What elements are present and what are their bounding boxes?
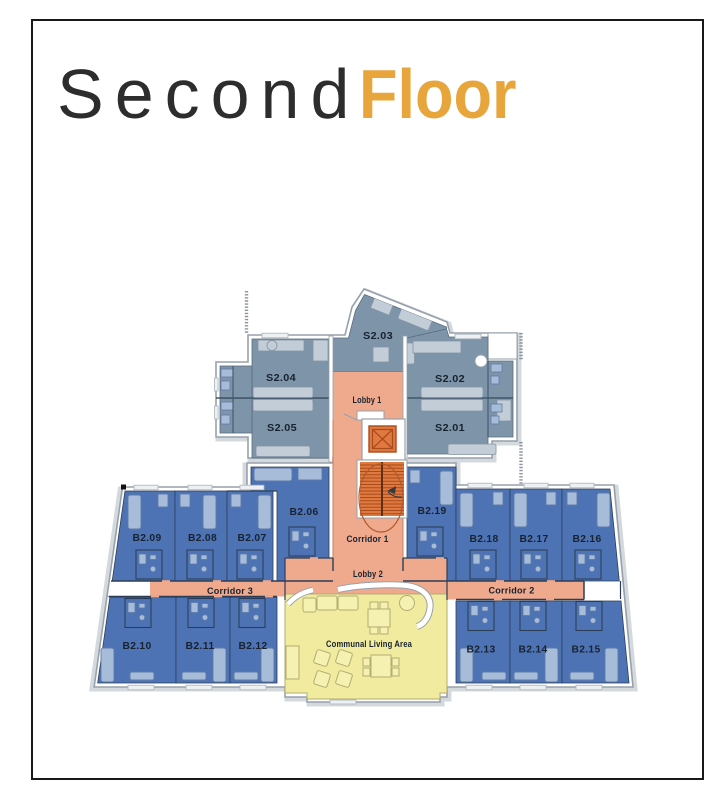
svg-text:B2.06: B2.06 xyxy=(290,507,319,518)
svg-text:B2.08: B2.08 xyxy=(188,533,217,544)
svg-text:B2.17: B2.17 xyxy=(520,534,549,545)
svg-text:B2.07: B2.07 xyxy=(238,533,267,544)
svg-text:Lobby 2: Lobby 2 xyxy=(353,569,383,579)
svg-text:B2.19: B2.19 xyxy=(418,506,447,517)
svg-text:B2.11: B2.11 xyxy=(186,641,215,652)
svg-text:S2.01: S2.01 xyxy=(435,423,465,434)
svg-text:B2.15: B2.15 xyxy=(572,645,601,656)
svg-text:Corridor 1: Corridor 1 xyxy=(347,534,389,544)
svg-text:S2.03: S2.03 xyxy=(363,331,393,342)
svg-text:S2.02: S2.02 xyxy=(435,374,465,385)
svg-text:B2.12: B2.12 xyxy=(239,641,268,652)
svg-text:B2.14: B2.14 xyxy=(519,645,548,656)
svg-text:Corridor 2: Corridor 2 xyxy=(489,586,535,596)
svg-text:B2.13: B2.13 xyxy=(467,645,496,656)
svg-text:Corridor 3: Corridor 3 xyxy=(207,586,253,596)
svg-text:B2.10: B2.10 xyxy=(123,641,152,652)
svg-text:S2.05: S2.05 xyxy=(267,423,297,434)
svg-text:Lobby 1: Lobby 1 xyxy=(353,395,382,405)
svg-text:B2.16: B2.16 xyxy=(573,534,602,545)
svg-text:Communal Living Area: Communal Living Area xyxy=(326,639,413,649)
svg-text:S2.04: S2.04 xyxy=(266,373,296,384)
svg-text:B2.18: B2.18 xyxy=(470,534,499,545)
svg-text:B2.09: B2.09 xyxy=(133,533,162,544)
